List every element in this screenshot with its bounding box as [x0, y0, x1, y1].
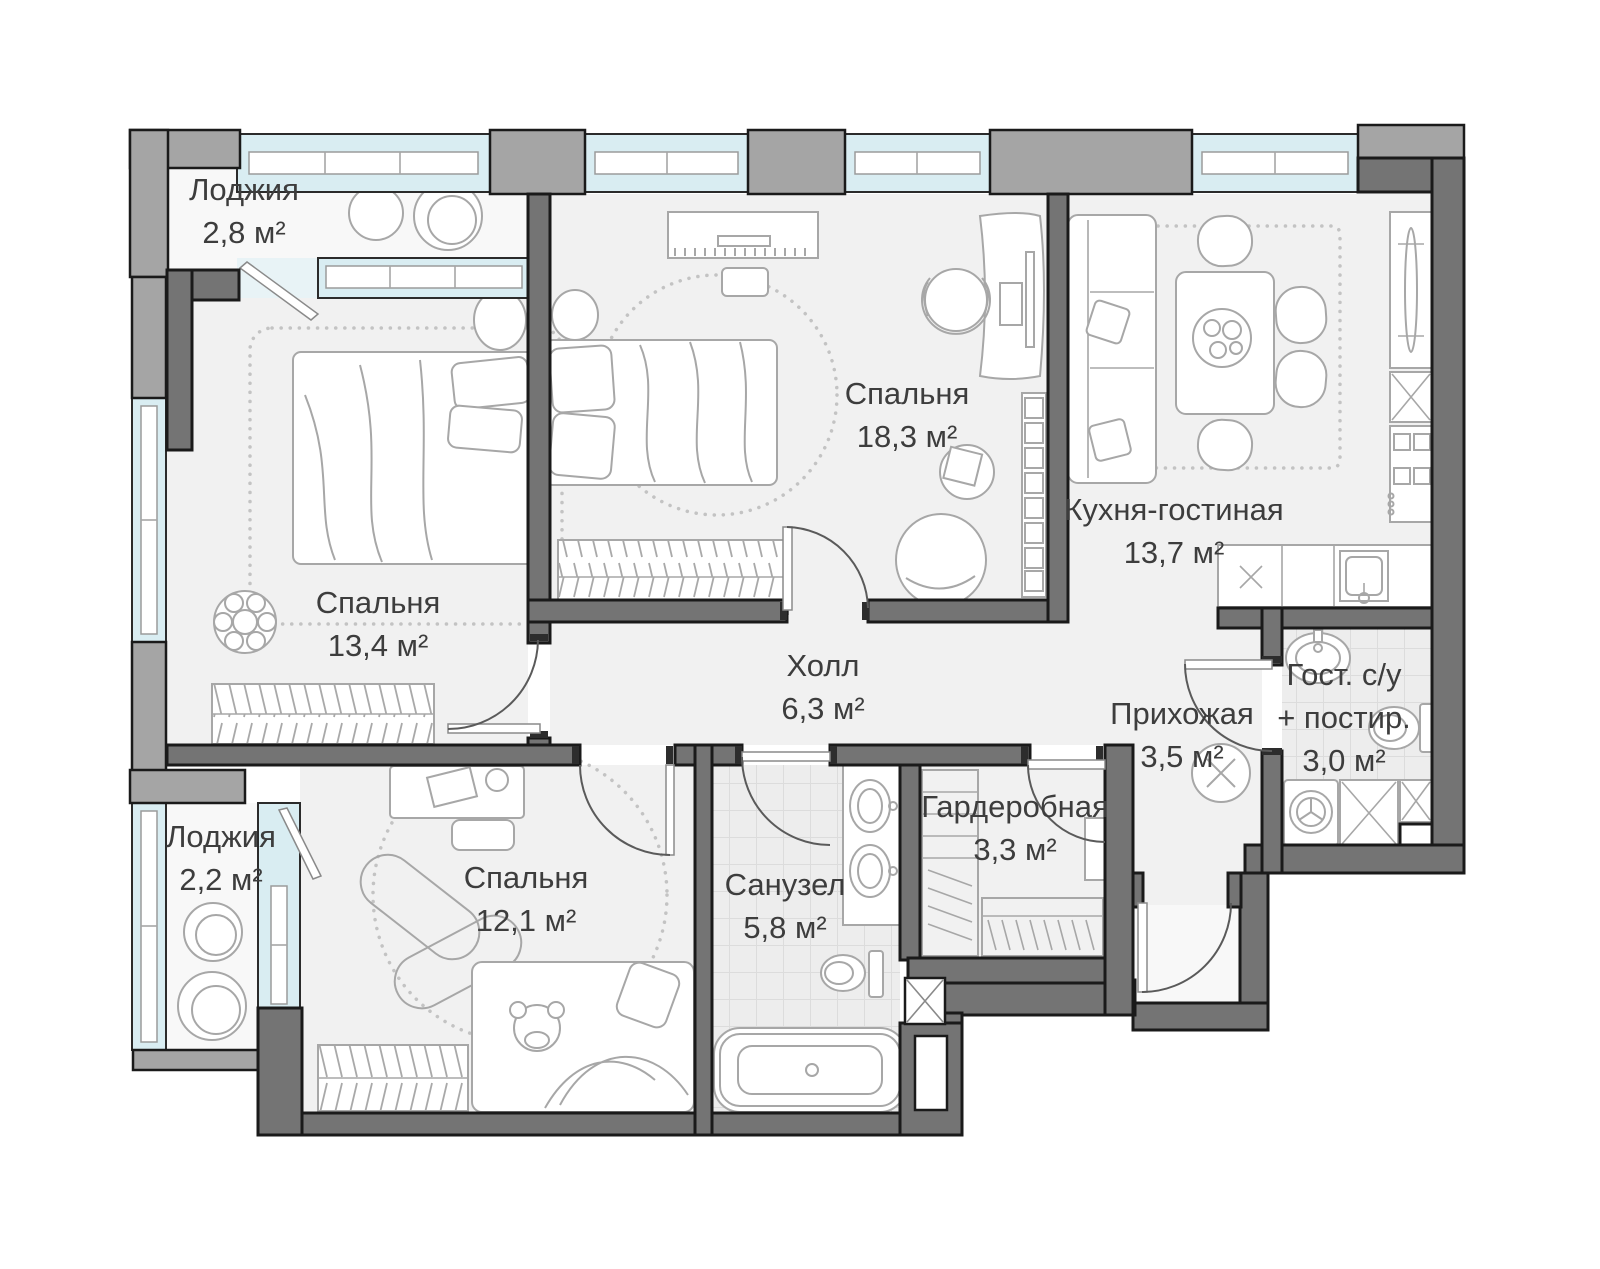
room-area: 2,2 м²	[166, 859, 276, 902]
room-name: Гардеробная	[921, 786, 1109, 829]
room-area: 2,8 м²	[189, 212, 299, 255]
room-name: Спальня	[464, 857, 589, 900]
room-name-line2: + постир.	[1277, 697, 1411, 740]
room-area: 3,3 м²	[921, 829, 1109, 872]
room-label-bathroom: Санузел 5,8 м²	[725, 864, 846, 950]
room-label-bedroom-left: Спальня 13,4 м²	[316, 582, 441, 668]
room-name: Холл	[781, 645, 864, 688]
room-area: 3,0 м²	[1277, 739, 1411, 782]
room-name: Спальня	[845, 373, 970, 416]
room-area: 12,1 м²	[464, 900, 589, 943]
room-name: Лоджия	[166, 816, 276, 859]
room-area: 3,5 м²	[1110, 736, 1254, 779]
room-name: Кухня-гостиная	[1064, 489, 1283, 532]
room-name: Спальня	[316, 582, 441, 625]
room-label-wardrobe-room: Гардеробная 3,3 м²	[921, 786, 1109, 872]
room-name: Лоджия	[189, 169, 299, 212]
room-label-bedroom-top: Спальня 18,3 м²	[845, 373, 970, 459]
room-label-loggia-top: Лоджия 2,8 м²	[189, 169, 299, 255]
room-area: 18,3 м²	[845, 416, 970, 459]
room-label-entry-hall: Прихожая 3,5 м²	[1110, 693, 1254, 779]
room-label-kitchen-living: Кухня-гостиная 13,7 м²	[1064, 489, 1283, 575]
room-area: 5,8 м²	[725, 907, 846, 950]
room-label-guest-bathroom: Гост. с/у + постир. 3,0 м²	[1277, 654, 1411, 782]
room-name: Гост. с/у	[1277, 654, 1411, 697]
room-area: 13,4 м²	[316, 625, 441, 668]
room-area: 13,7 м²	[1064, 532, 1283, 575]
room-area: 6,3 м²	[781, 688, 864, 731]
room-label-bedroom-bottom: Спальня 12,1 м²	[464, 857, 589, 943]
room-label-hall: Холл 6,3 м²	[781, 645, 864, 731]
room-name: Прихожая	[1110, 693, 1254, 736]
floor-plan-page: Лоджия 2,8 м² Спальня 13,4 м² Спальня 18…	[0, 0, 1600, 1269]
room-name: Санузел	[725, 864, 846, 907]
room-label-loggia-bottom: Лоджия 2,2 м²	[166, 816, 276, 902]
